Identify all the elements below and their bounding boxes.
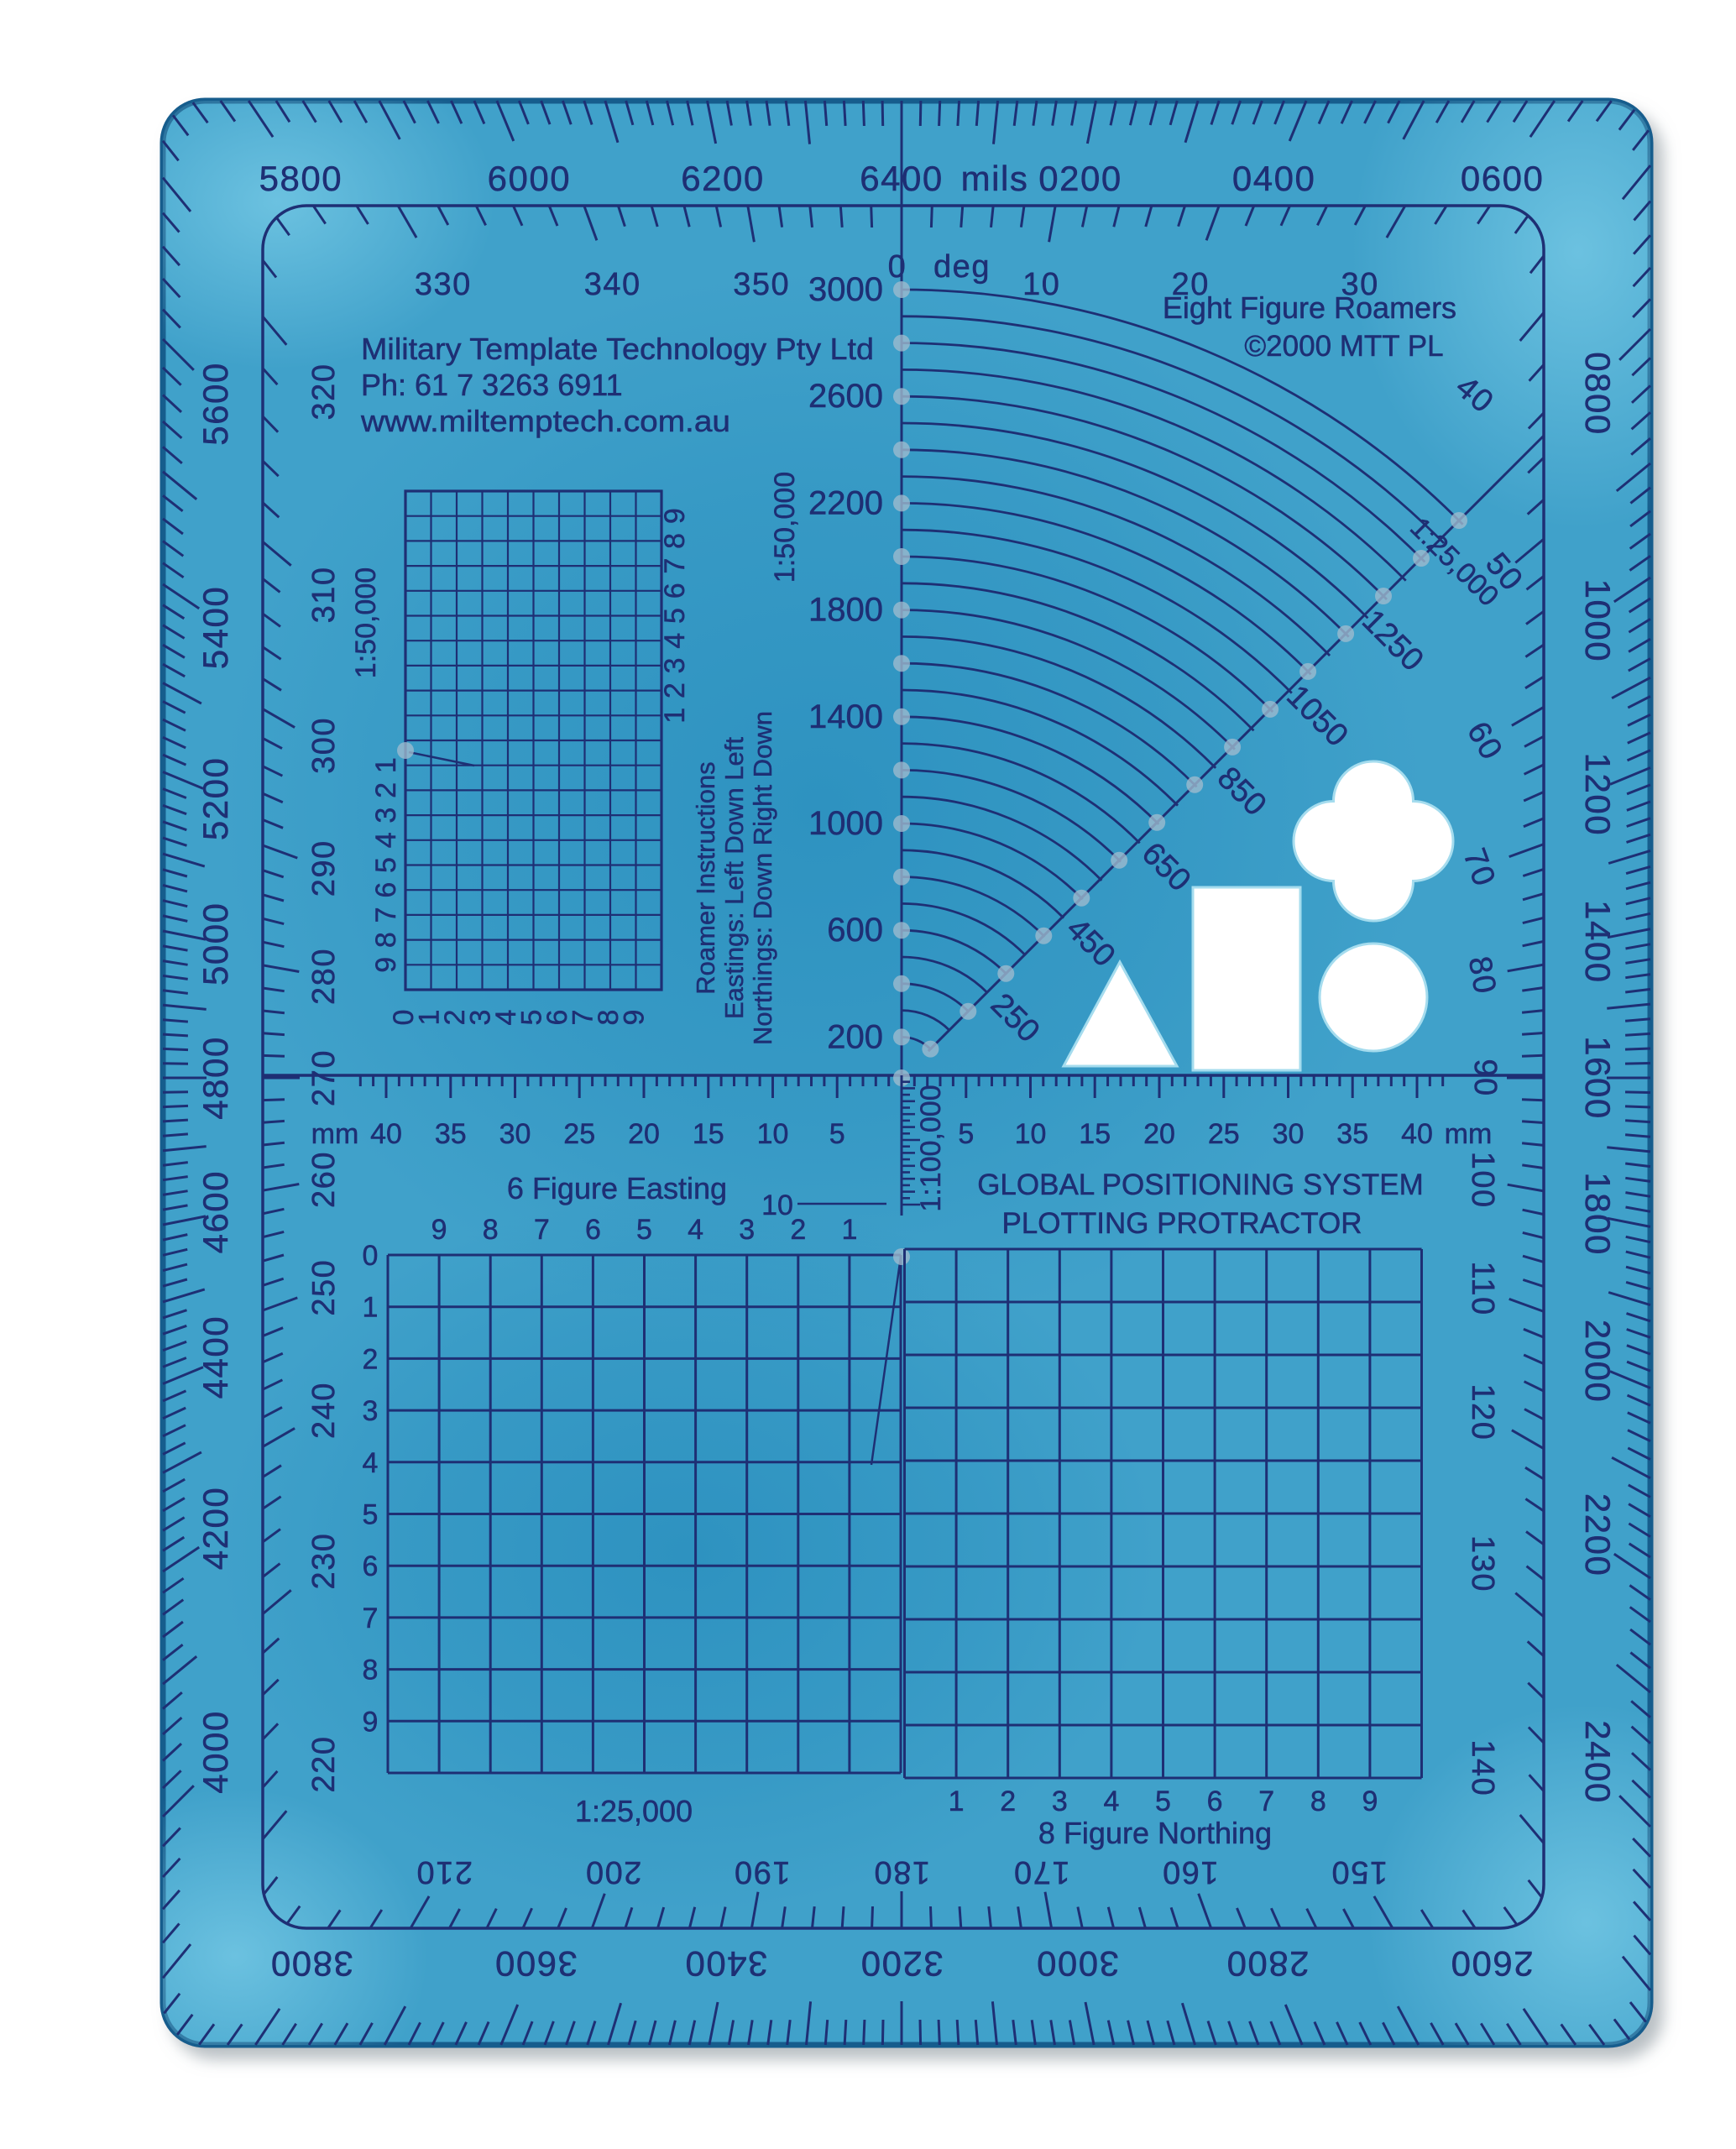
svg-text:8: 8 [483, 1214, 499, 1246]
svg-text:5200: 5200 [196, 757, 235, 840]
svg-text:8: 8 [370, 932, 402, 948]
svg-text:7: 7 [659, 558, 691, 574]
svg-text:6: 6 [1207, 1786, 1223, 1817]
svg-text:8 Figure Northing: 8 Figure Northing [1038, 1816, 1272, 1850]
svg-text:3: 3 [363, 1395, 379, 1427]
svg-text:1:100,000: 1:100,000 [915, 1085, 947, 1211]
svg-text:1400: 1400 [808, 698, 883, 735]
svg-text:3: 3 [659, 657, 691, 673]
svg-text:10: 10 [1015, 1118, 1047, 1150]
svg-text:10: 10 [761, 1190, 793, 1221]
svg-text:7: 7 [363, 1603, 379, 1634]
svg-text:Military Template Technology P: Military Template Technology Pty Ltd [361, 332, 874, 366]
svg-text:3200: 3200 [860, 1944, 943, 1984]
svg-text:9: 9 [363, 1706, 379, 1738]
svg-text:6: 6 [585, 1214, 601, 1246]
svg-text:mm: mm [311, 1118, 359, 1150]
svg-text:7: 7 [534, 1214, 550, 1246]
svg-text:Northings: Down Right Down: Northings: Down Right Down [748, 711, 777, 1045]
svg-text:7: 7 [370, 907, 402, 923]
svg-text:4: 4 [688, 1214, 703, 1246]
svg-text:8: 8 [659, 533, 691, 549]
svg-text:0: 0 [888, 249, 907, 285]
svg-text:260: 260 [306, 1151, 342, 1208]
svg-text:7: 7 [1258, 1786, 1274, 1817]
svg-text:100: 100 [1465, 1152, 1500, 1209]
svg-text:2800: 2800 [1226, 1944, 1309, 1984]
svg-text:5: 5 [829, 1118, 845, 1150]
svg-text:30: 30 [499, 1118, 531, 1150]
svg-text:1:25,000: 1:25,000 [575, 1794, 693, 1828]
svg-text:1:50,000: 1:50,000 [350, 567, 382, 678]
svg-text:0800: 0800 [1578, 352, 1618, 435]
svg-text:1: 1 [949, 1786, 965, 1817]
svg-text:3: 3 [370, 808, 402, 824]
svg-text:9: 9 [370, 957, 402, 973]
svg-text:3000: 3000 [1036, 1944, 1119, 1984]
svg-text:8: 8 [1310, 1786, 1326, 1817]
svg-text:9: 9 [431, 1214, 447, 1246]
svg-text:6200: 6200 [681, 159, 764, 198]
svg-text:200: 200 [827, 1018, 883, 1055]
svg-text:6: 6 [363, 1550, 379, 1582]
svg-text:5: 5 [370, 857, 402, 873]
svg-text:2600: 2600 [1450, 1944, 1533, 1984]
svg-text:200: 200 [584, 1854, 641, 1890]
svg-text:80: 80 [1461, 954, 1503, 997]
svg-text:2400: 2400 [1578, 1720, 1618, 1803]
svg-text:4: 4 [370, 832, 402, 848]
svg-text:©2000 MTT PL: ©2000 MTT PL [1244, 330, 1443, 363]
svg-text:240: 240 [306, 1382, 342, 1439]
svg-text:40: 40 [1401, 1118, 1433, 1150]
svg-text:350: 350 [733, 267, 790, 302]
svg-text:120: 120 [1465, 1383, 1500, 1441]
svg-text:5400: 5400 [196, 586, 235, 669]
svg-text:Eight Figure Roamers: Eight Figure Roamers [1163, 290, 1456, 325]
svg-text:0400: 0400 [1232, 159, 1315, 198]
svg-text:2200: 2200 [1578, 1493, 1618, 1576]
svg-text:270: 270 [306, 1049, 342, 1106]
svg-text:5: 5 [958, 1118, 974, 1150]
svg-text:6000: 6000 [488, 159, 571, 198]
svg-text:3: 3 [739, 1214, 755, 1246]
svg-text:3400: 3400 [684, 1944, 767, 1984]
svg-text:4: 4 [1103, 1786, 1119, 1817]
svg-text:5000: 5000 [196, 902, 235, 986]
svg-text:230: 230 [306, 1533, 342, 1590]
svg-text:1800: 1800 [808, 592, 883, 629]
svg-text:15: 15 [1079, 1118, 1111, 1150]
svg-text:1: 1 [363, 1292, 379, 1324]
svg-text:320: 320 [306, 363, 342, 421]
svg-text:220: 220 [306, 1736, 342, 1793]
svg-text:150: 150 [1331, 1854, 1388, 1890]
svg-text:2: 2 [659, 682, 691, 698]
svg-text:250: 250 [306, 1259, 342, 1316]
svg-text:1600: 1600 [1578, 1036, 1618, 1119]
svg-text:5800: 5800 [259, 159, 342, 198]
svg-text:4: 4 [363, 1447, 379, 1479]
svg-text:9: 9 [659, 508, 691, 524]
svg-text:5: 5 [636, 1214, 652, 1246]
svg-text:3: 3 [1052, 1786, 1068, 1817]
svg-text:Roamer Instructions: Roamer Instructions [691, 761, 720, 994]
svg-text:1: 1 [841, 1214, 857, 1246]
svg-text:130: 130 [1465, 1535, 1500, 1592]
svg-text:5: 5 [1155, 1786, 1171, 1817]
svg-text:1000: 1000 [1578, 579, 1618, 662]
svg-text:GLOBAL POSITIONING SYSTEM: GLOBAL POSITIONING SYSTEM [977, 1169, 1424, 1201]
svg-text:Ph: 61 7 3263 6911: Ph: 61 7 3263 6911 [361, 368, 623, 402]
svg-text:35: 35 [435, 1118, 467, 1150]
svg-text:1400: 1400 [1578, 900, 1618, 983]
svg-text:4600: 4600 [196, 1170, 235, 1253]
svg-text:330: 330 [415, 267, 472, 302]
svg-text:310: 310 [306, 566, 342, 623]
svg-text:20: 20 [1143, 1118, 1175, 1150]
svg-text:1200: 1200 [1578, 753, 1618, 836]
svg-text:2: 2 [370, 782, 402, 798]
svg-text:3600: 3600 [494, 1944, 577, 1984]
svg-text:6: 6 [659, 583, 691, 599]
svg-text:9: 9 [1362, 1786, 1378, 1817]
svg-text:90: 90 [1467, 1059, 1503, 1096]
svg-text:180: 180 [873, 1854, 930, 1890]
svg-text:25: 25 [563, 1118, 595, 1150]
svg-text:2: 2 [1000, 1786, 1016, 1817]
svg-text:10: 10 [1022, 267, 1060, 302]
svg-text:2: 2 [363, 1343, 379, 1375]
svg-text:110: 110 [1465, 1262, 1500, 1316]
svg-text:10: 10 [757, 1118, 789, 1150]
svg-text:25: 25 [1208, 1118, 1240, 1150]
svg-text:5600: 5600 [196, 362, 235, 445]
svg-text:0200: 0200 [1038, 159, 1122, 198]
svg-text:0: 0 [363, 1240, 379, 1272]
svg-text:210: 210 [416, 1854, 473, 1890]
svg-text:5: 5 [659, 608, 691, 624]
svg-text:1: 1 [370, 757, 402, 773]
svg-text:290: 290 [306, 839, 342, 897]
svg-text:2000: 2000 [1578, 1320, 1618, 1403]
svg-text:4400: 4400 [196, 1315, 235, 1399]
svg-text:600: 600 [827, 912, 883, 949]
svg-text:1:50,000: 1:50,000 [769, 472, 801, 583]
svg-text:4200: 4200 [196, 1487, 235, 1570]
svg-text:8: 8 [363, 1655, 379, 1686]
svg-text:1000: 1000 [808, 805, 883, 842]
svg-text:0600: 0600 [1461, 159, 1544, 198]
svg-text:1: 1 [659, 708, 691, 724]
svg-text:140: 140 [1465, 1739, 1500, 1796]
svg-text:4000: 4000 [196, 1710, 235, 1793]
svg-text:2: 2 [790, 1214, 806, 1246]
svg-text:9: 9 [618, 1010, 650, 1026]
svg-text:20: 20 [628, 1118, 660, 1150]
svg-text:190: 190 [734, 1854, 791, 1890]
svg-text:mils: mils [961, 159, 1029, 198]
svg-text:www.miltemptech.com.au: www.miltemptech.com.au [360, 404, 730, 438]
svg-text:6: 6 [370, 882, 402, 898]
svg-text:30: 30 [1273, 1118, 1305, 1150]
svg-text:mm: mm [1445, 1118, 1493, 1150]
svg-text:3800: 3800 [269, 1944, 353, 1984]
svg-text:6 Figure Easting: 6 Figure Easting [507, 1171, 727, 1205]
svg-text:170: 170 [1013, 1854, 1070, 1890]
svg-text:5: 5 [363, 1499, 379, 1531]
svg-text:Eastings: Left Down Left: Eastings: Left Down Left [719, 737, 749, 1019]
svg-text:15: 15 [693, 1118, 724, 1150]
svg-text:3000: 3000 [808, 271, 883, 308]
svg-text:340: 340 [584, 267, 641, 302]
svg-text:280: 280 [306, 948, 342, 1005]
svg-text:300: 300 [306, 717, 342, 774]
svg-text:1800: 1800 [1578, 1172, 1618, 1255]
svg-text:4: 4 [659, 633, 691, 649]
svg-text:deg: deg [933, 249, 991, 285]
svg-text:4800: 4800 [196, 1036, 235, 1119]
svg-text:35: 35 [1336, 1118, 1368, 1150]
svg-text:PLOTTING PROTRACTOR: PLOTTING PROTRACTOR [1001, 1207, 1362, 1240]
svg-text:160: 160 [1162, 1854, 1219, 1890]
svg-text:2600: 2600 [808, 378, 883, 415]
svg-text:2200: 2200 [808, 484, 883, 521]
svg-text:40: 40 [370, 1118, 402, 1150]
